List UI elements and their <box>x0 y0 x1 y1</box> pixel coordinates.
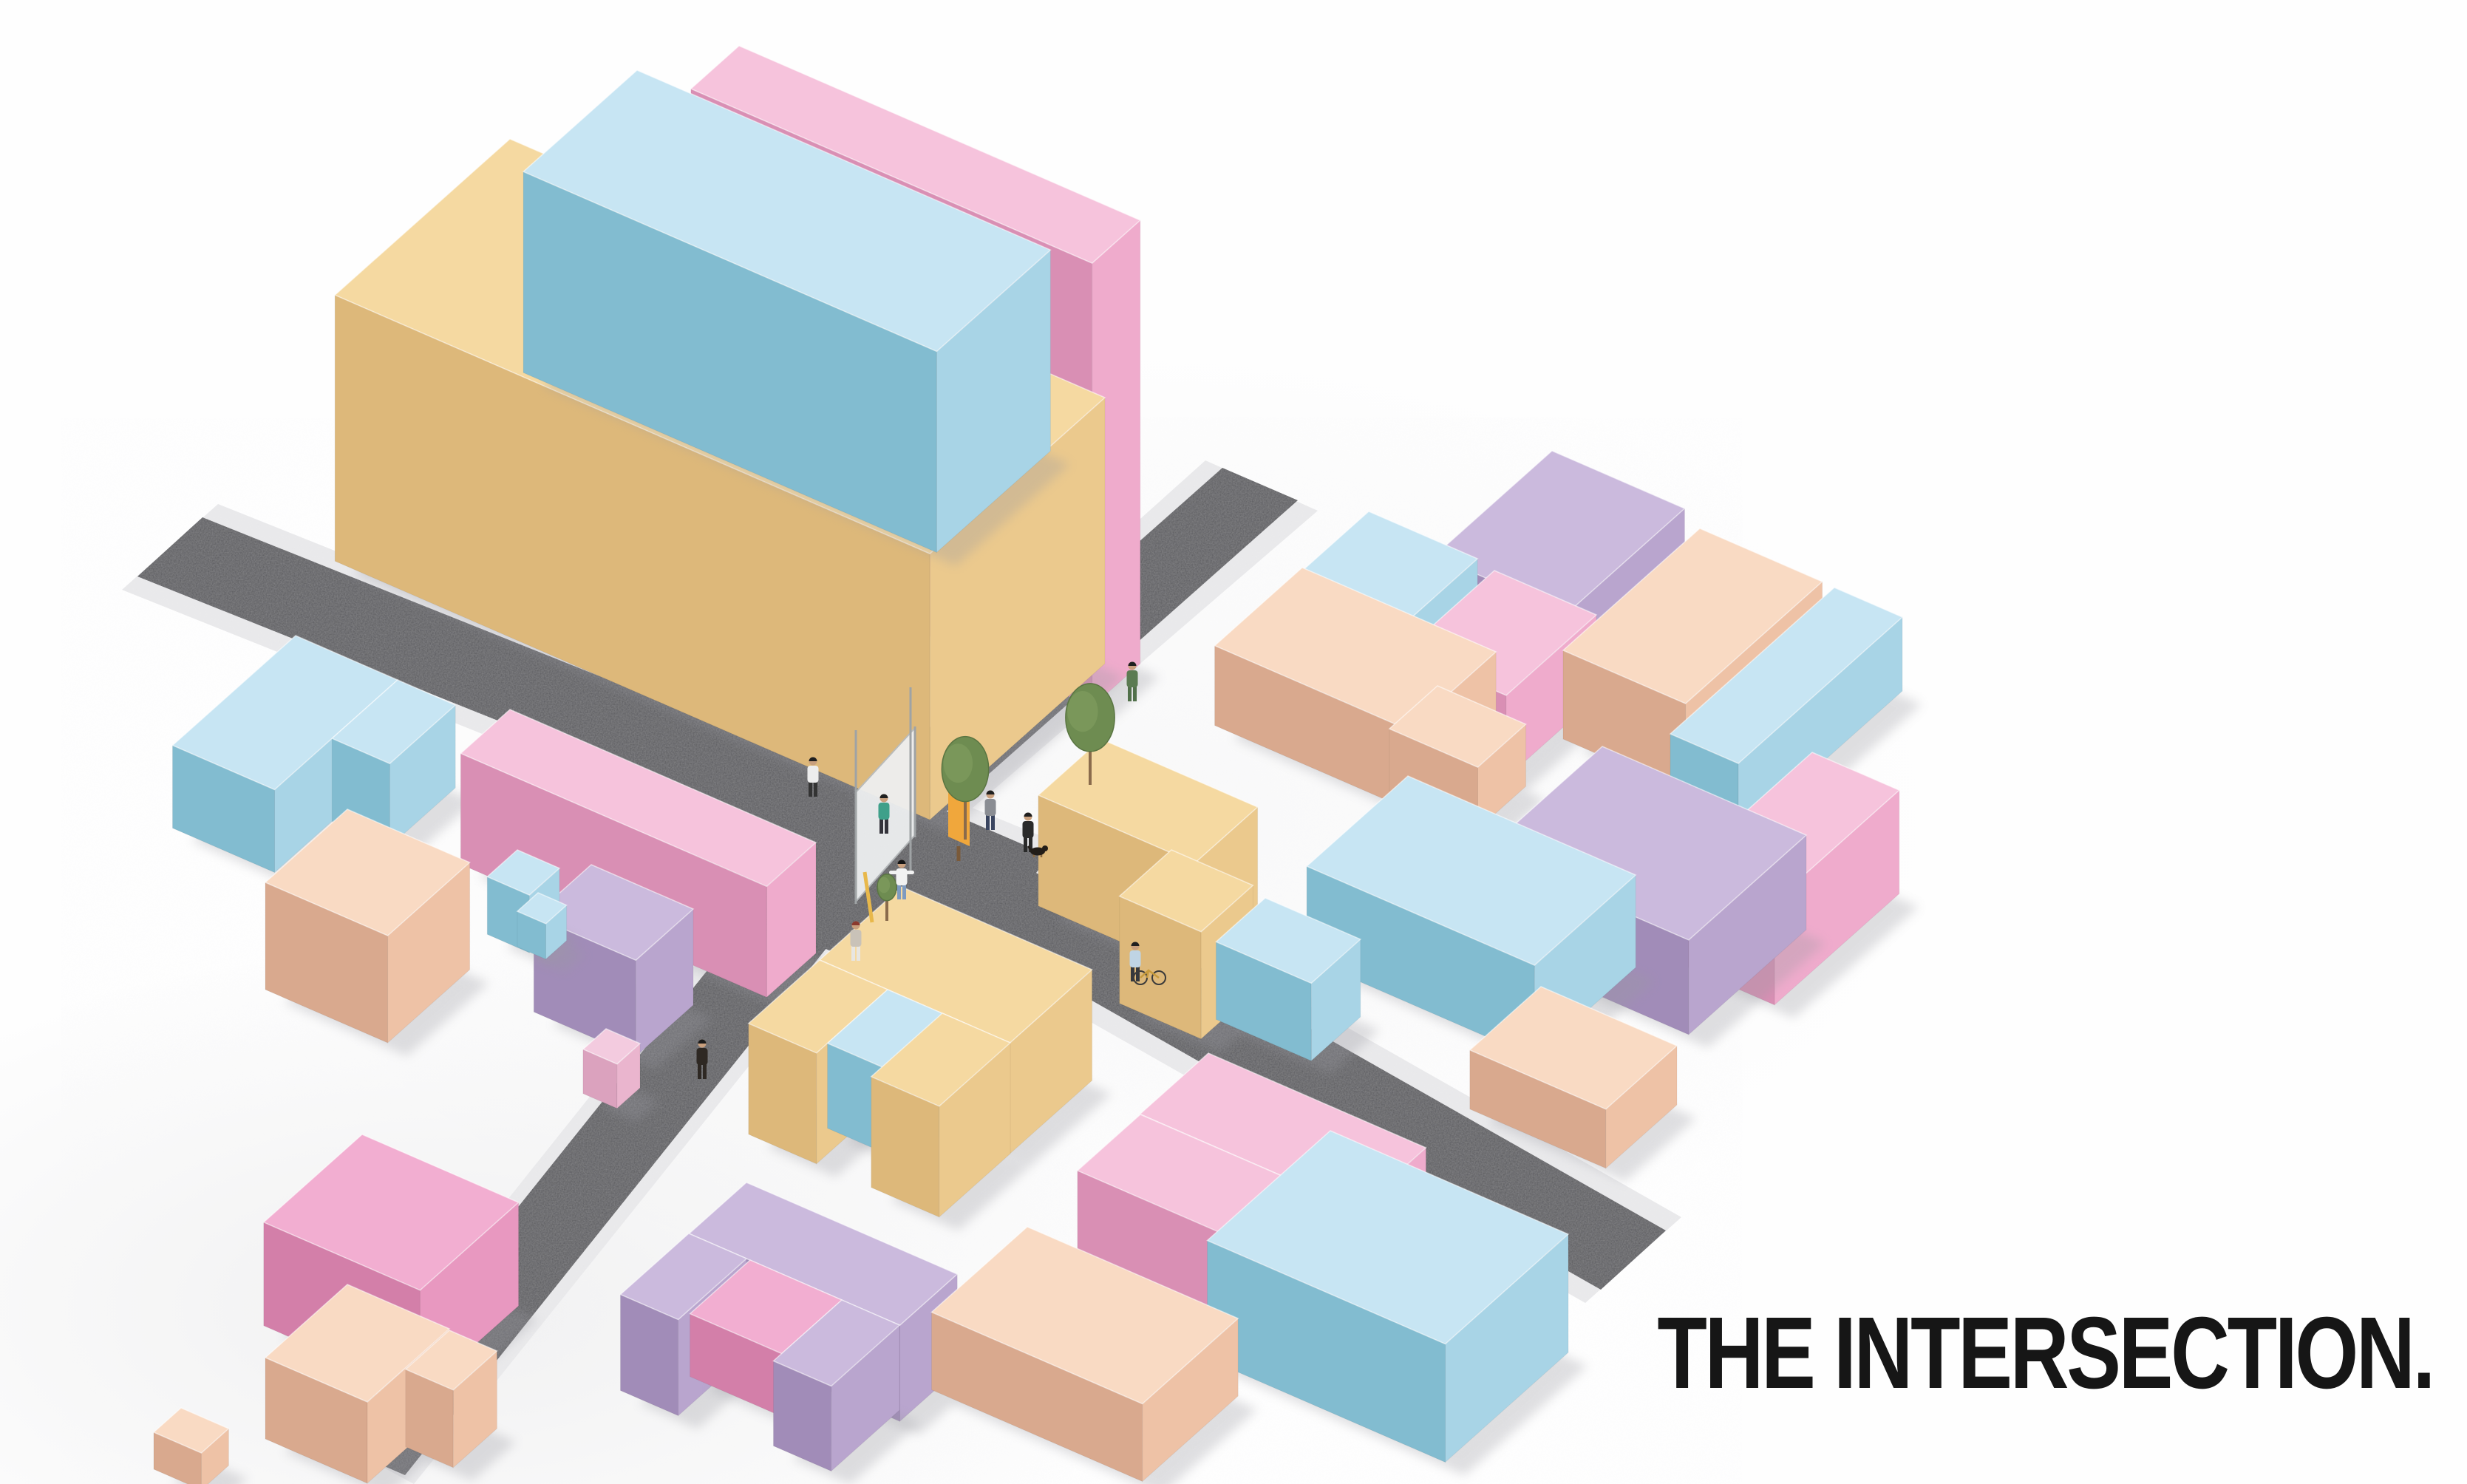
person-white-shirt-torso <box>808 766 819 783</box>
city-scene <box>0 0 2467 1484</box>
tree-plaza-canopy-highlight <box>944 743 973 783</box>
tiny-peach-southwest <box>154 1408 248 1484</box>
person-cyclist-torso <box>1130 950 1141 967</box>
person-dog-walker-hair <box>1024 813 1032 817</box>
person-green-outfit-torso <box>1127 670 1138 687</box>
person-white-jacket-torso <box>896 868 908 885</box>
page-title: THE INTERSECTION. <box>1657 1295 2433 1412</box>
dog-head <box>1042 845 1048 851</box>
tree-north-canopy-highlight <box>1067 691 1098 732</box>
person-plaid-shirt-torso <box>985 799 996 816</box>
person-dog-walker-torso <box>1023 821 1034 838</box>
person-striped-top-torso <box>851 930 862 947</box>
buildings-layer <box>154 46 1922 1484</box>
person-teal-top-torso <box>879 803 890 820</box>
tree-small-canopy-highlight <box>878 877 890 894</box>
person-dark-road-torso <box>697 1048 708 1065</box>
